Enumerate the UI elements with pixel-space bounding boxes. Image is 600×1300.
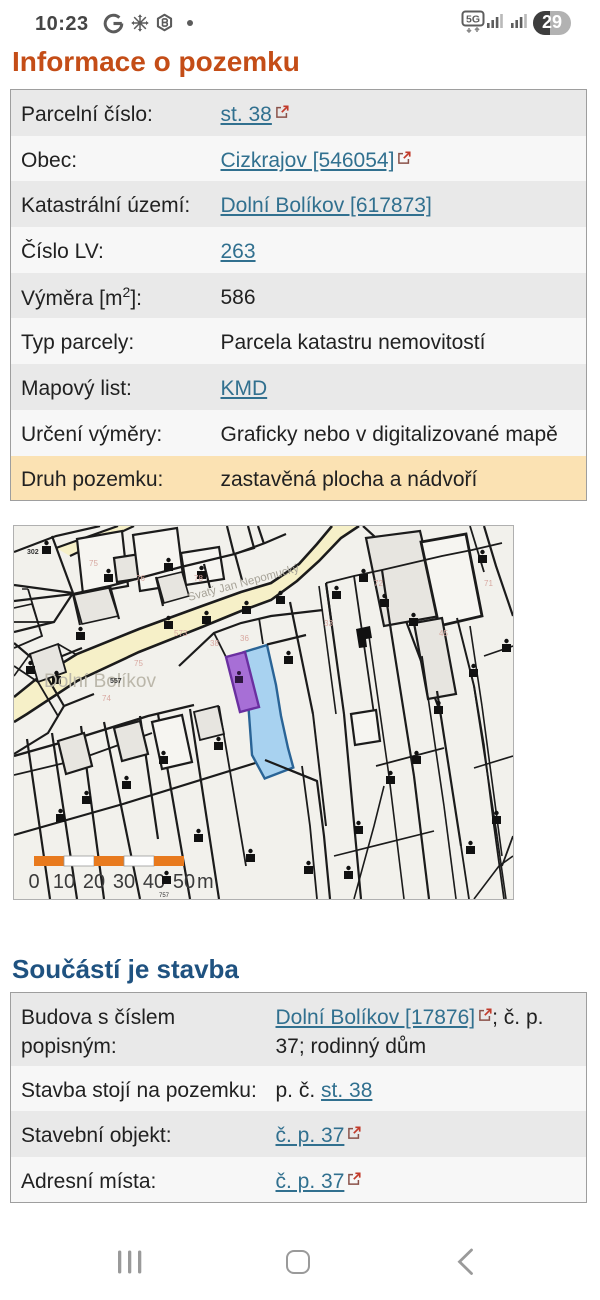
svg-text:10: 10: [53, 871, 75, 893]
svg-text:72: 72: [374, 579, 383, 588]
svg-text:38: 38: [210, 639, 219, 648]
svg-text:0: 0: [28, 871, 39, 893]
svg-text:40: 40: [143, 871, 165, 893]
svg-text:75: 75: [134, 659, 143, 668]
svg-text:5G: 5G: [466, 14, 480, 26]
svg-text:75: 75: [89, 559, 98, 568]
svg-text:557: 557: [110, 678, 122, 685]
svg-text:Dolní Bolíkov: Dolní Bolíkov: [44, 671, 156, 692]
svg-text:36: 36: [240, 634, 249, 643]
svg-text:45: 45: [439, 629, 448, 638]
svg-text:50: 50: [173, 871, 195, 893]
svg-text:m: m: [197, 871, 214, 893]
svg-text:71: 71: [484, 579, 493, 588]
svg-text:76: 76: [136, 574, 145, 583]
svg-text:573: 573: [174, 629, 188, 638]
svg-text:20: 20: [83, 871, 105, 893]
svg-text:30: 30: [113, 871, 135, 893]
svg-text:302: 302: [27, 549, 39, 556]
svg-text:33: 33: [324, 619, 333, 628]
svg-text:74: 74: [102, 694, 111, 703]
svg-text:78: 78: [194, 574, 203, 583]
svg-text:757: 757: [159, 893, 170, 899]
